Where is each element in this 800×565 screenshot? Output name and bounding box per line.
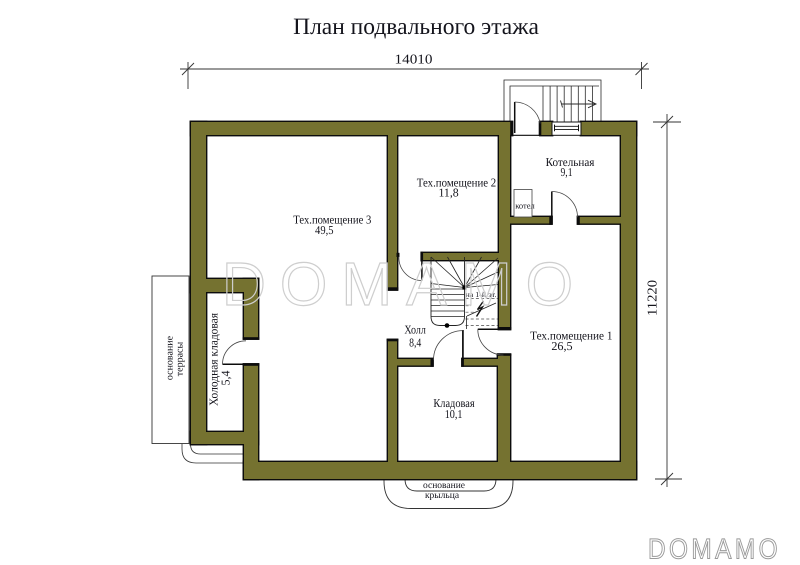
svg-text:основание: основание [423, 481, 465, 491]
svg-text:котел: котел [515, 201, 535, 211]
svg-text:11,8: 11,8 [438, 185, 458, 199]
svg-text:49,5: 49,5 [315, 223, 334, 237]
svg-text:5,4: 5,4 [219, 371, 233, 386]
svg-text:DOMAMO: DOMAMO [222, 250, 587, 318]
svg-text:9,1: 9,1 [561, 165, 573, 179]
svg-text:11220: 11220 [645, 280, 660, 316]
svg-text:26,5: 26,5 [551, 339, 572, 353]
svg-text:10,1: 10,1 [445, 407, 463, 421]
svg-text:Холодная кладовая: Холодная кладовая [207, 313, 221, 406]
svg-text:крыльца: крыльца [425, 491, 460, 501]
svg-text:DOMAMO: DOMAMO [648, 534, 781, 565]
svg-text:8,4: 8,4 [409, 336, 421, 350]
svg-text:террасы: террасы [175, 342, 186, 377]
svg-text:План подвального этажа: План подвального этажа [293, 14, 539, 40]
svg-text:14010: 14010 [395, 52, 433, 67]
